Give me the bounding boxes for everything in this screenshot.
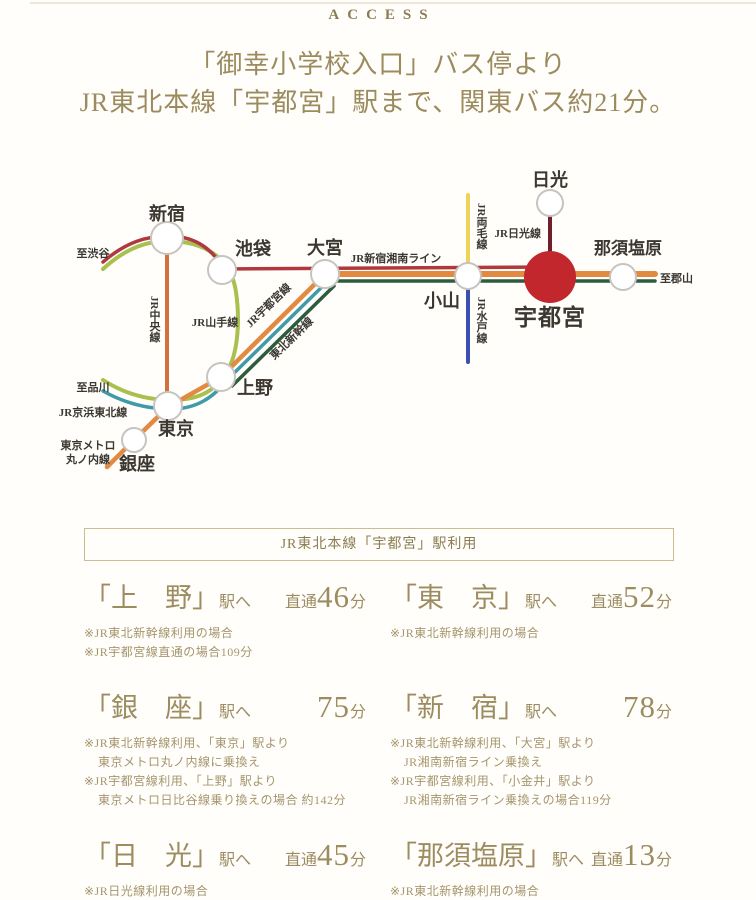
route-dest-suffix: 駅へ [219,704,251,721]
station-node-shinjuku [151,222,183,254]
route-note: ※JR宇都宮線利用、「上野」駅より [84,772,366,791]
route-note: ※JR東北新幹線利用、「大宮」駅より [390,734,672,753]
route-note: JR湘南新宿ライン乗換え [390,753,672,772]
route-time-unit: 分 [656,594,672,611]
route-time-value: 78 [623,689,656,724]
route-note: ※JR東北新幹線利用の場合 [390,624,672,643]
station-label-nasushiobara: 那須塩原 [594,238,662,258]
route-notes: ※JR東北新幹線利用、「東京」駅より 東京メトロ丸ノ内線に乗換え ※JR宇都宮線… [84,734,366,810]
station-node-ginza [122,428,146,452]
station-node-ikebukuro [208,256,236,284]
route-notes: ※JR東北新幹線利用の場合 [390,624,672,643]
station-label-ueno: 上野 [237,378,273,398]
line-label-chuo: JR中央線 [148,296,161,343]
route-notes: ※JR東北新幹線利用の場合 ※JR宇都宮線直通の場合109分 [84,624,366,662]
route-nasushiobara: 「那須塩原」駅へ 直通13分 ※JR東北新幹線利用の場合 ※JR宇都宮線直通の場… [390,834,672,900]
route-title: 「銀 座」駅へ 75分 [84,686,366,725]
route-time-prefix: 直通 [285,852,317,869]
route-time-unit: 分 [656,852,672,869]
route-time-prefix: 直通 [591,594,623,611]
route-time-unit: 分 [656,704,672,721]
route-station-name: 「那須塩原」 [390,841,552,871]
station-label-shinjuku: 新宿 [149,203,185,224]
route-note: ※JR東北新幹線利用の場合 [390,882,672,900]
usage-box-title: JR東北本線「宇都宮」駅利用 [84,528,674,561]
page-title: 「御幸小学校入口」バス停より JR東北本線「宇都宮」駅まで、関東バス約21分。 [0,46,756,122]
section-title: ACCESS [0,7,756,24]
route-time-value: 45 [317,837,350,872]
station-label-ginza: 銀座 [119,453,155,474]
route-time-value: 52 [623,579,656,614]
route-title: 「東 京」駅へ 直通52分 [390,576,672,615]
route-dest-suffix: 駅へ [525,594,557,611]
route-notes: ※JR日光線利用の場合 [84,882,366,900]
line-label-nikko-line: JR日光線 [495,226,541,240]
route-dest-suffix: 駅へ [219,852,251,869]
line-label-to-shinagawa: 至品川 [77,381,110,394]
route-note: ※JR宇都宮線直通の場合109分 [84,643,366,662]
station-node-utsunomiya [524,251,576,303]
route-station-name: 「日 光」 [84,841,219,871]
route-note: 東京メトロ丸ノ内線に乗換え [84,753,366,772]
route-time-unit: 分 [350,704,366,721]
route-time-unit: 分 [350,594,366,611]
route-title: 「上 野」駅へ 直通46分 [84,576,366,615]
station-label-omiya: 大宮 [307,237,343,258]
line-label-to-koriyama: 至郡山 [660,271,693,285]
line-label-shonan-shinjuku: JR新宿湘南ライン [351,251,441,265]
route-time-value: 13 [623,837,656,872]
route-time-prefix: 直通 [285,594,317,611]
route-tokyo: 「東 京」駅へ 直通52分 ※JR東北新幹線利用の場合 [390,576,672,662]
station-node-tokyo [154,392,182,420]
station-label-nikko: 日光 [532,169,568,190]
route-dest-suffix: 駅へ [552,852,584,869]
route-dest-suffix: 駅へ [219,594,251,611]
route-time-unit: 分 [350,852,366,869]
route-station-name: 「東 京」 [390,583,525,613]
route-note: ※JR東北新幹線利用、「東京」駅より [84,734,366,753]
route-time: 直通13分 [591,837,672,873]
line-label-yamanote: JR山手線 [192,315,238,329]
route-dest-suffix: 駅へ [525,704,557,721]
route-title: 「那須塩原」駅へ 直通13分 [390,834,672,873]
route-time-value: 46 [317,579,350,614]
route-note: 東京メトロ日比谷線乗り換えの場合 約142分 [84,791,366,810]
station-label-utsunomiya: 宇都宮 [514,304,586,330]
top-divider [30,2,756,4]
route-time-prefix: 直通 [591,852,623,869]
route-time: 直通46分 [285,579,366,615]
station-node-nikko [537,190,563,216]
route-list: 「上 野」駅へ 直通46分 ※JR東北新幹線利用の場合 ※JR宇都宮線直通の場合… [84,576,672,900]
station-label-oyama: 小山 [424,291,460,311]
route-ueno: 「上 野」駅へ 直通46分 ※JR東北新幹線利用の場合 ※JR宇都宮線直通の場合… [84,576,366,662]
line-label-keihin-tohoku: JR京浜東北線 [59,405,127,419]
page-title-line2: JR東北本線「宇都宮」駅まで、関東バス約21分。 [0,84,756,122]
route-notes: ※JR東北新幹線利用、「大宮」駅より JR湘南新宿ライン乗換え ※JR宇都宮線利… [390,734,672,810]
line-label-to-shibuya: 至渋谷 [77,246,111,260]
station-node-oyama [455,263,481,289]
line-label-tohoku-shinkansen: 東北新幹線 [267,314,316,362]
route-title: 「新 宿」駅へ 78分 [390,686,672,725]
route-station-name: 「新 宿」 [390,693,525,723]
railway-diagram: 新宿 池袋 大宮 小山 日光 那須塩原 上野 東京 銀座 宇都宮 至渋谷 JR山… [0,150,756,490]
route-note: ※JR宇都宮線利用、「小金井」駅より [390,772,672,791]
station-node-nasushiobara [610,264,636,290]
route-nikko: 「日 光」駅へ 直通45分 ※JR日光線利用の場合 [84,834,366,900]
page-title-line1: 「御幸小学校入口」バス停より [0,46,756,84]
route-title: 「日 光」駅へ 直通45分 [84,834,366,873]
route-time: 直通52分 [591,579,672,615]
station-label-tokyo: 東京 [158,418,194,439]
route-time: 75分 [317,689,366,725]
route-ginza: 「銀 座」駅へ 75分 ※JR東北新幹線利用、「東京」駅より 東京メトロ丸ノ内線… [84,686,366,810]
line-label-ryomo: JR両毛線 [475,203,488,250]
route-station-name: 「銀 座」 [84,693,219,723]
line-tohoku-shinkansen-diagonal [232,286,334,386]
route-time: 直通45分 [285,837,366,873]
station-label-ikebukuro: 池袋 [235,238,272,259]
route-note: ※JR日光線利用の場合 [84,882,366,900]
route-note: JR湘南新宿ライン乗換えの場合119分 [390,791,672,810]
line-label-mito: JR水戸線 [475,297,488,344]
route-note: ※JR東北新幹線利用の場合 [84,624,366,643]
line-label-marunouchi-2: 丸ノ内線 [65,452,110,466]
line-label-marunouchi-1: 東京メトロ [61,438,116,452]
route-time-value: 75 [317,689,350,724]
route-notes: ※JR東北新幹線利用の場合 ※JR宇都宮線直通の場合46分 [390,882,672,900]
route-shinjuku: 「新 宿」駅へ 78分 ※JR東北新幹線利用、「大宮」駅より JR湘南新宿ライン… [390,686,672,810]
station-node-ueno [207,363,235,391]
route-time: 78分 [623,689,672,725]
station-node-omiya [311,260,339,288]
access-page: ACCESS 「御幸小学校入口」バス停より JR東北本線「宇都宮」駅まで、関東バ… [0,0,756,900]
route-station-name: 「上 野」 [84,583,219,613]
